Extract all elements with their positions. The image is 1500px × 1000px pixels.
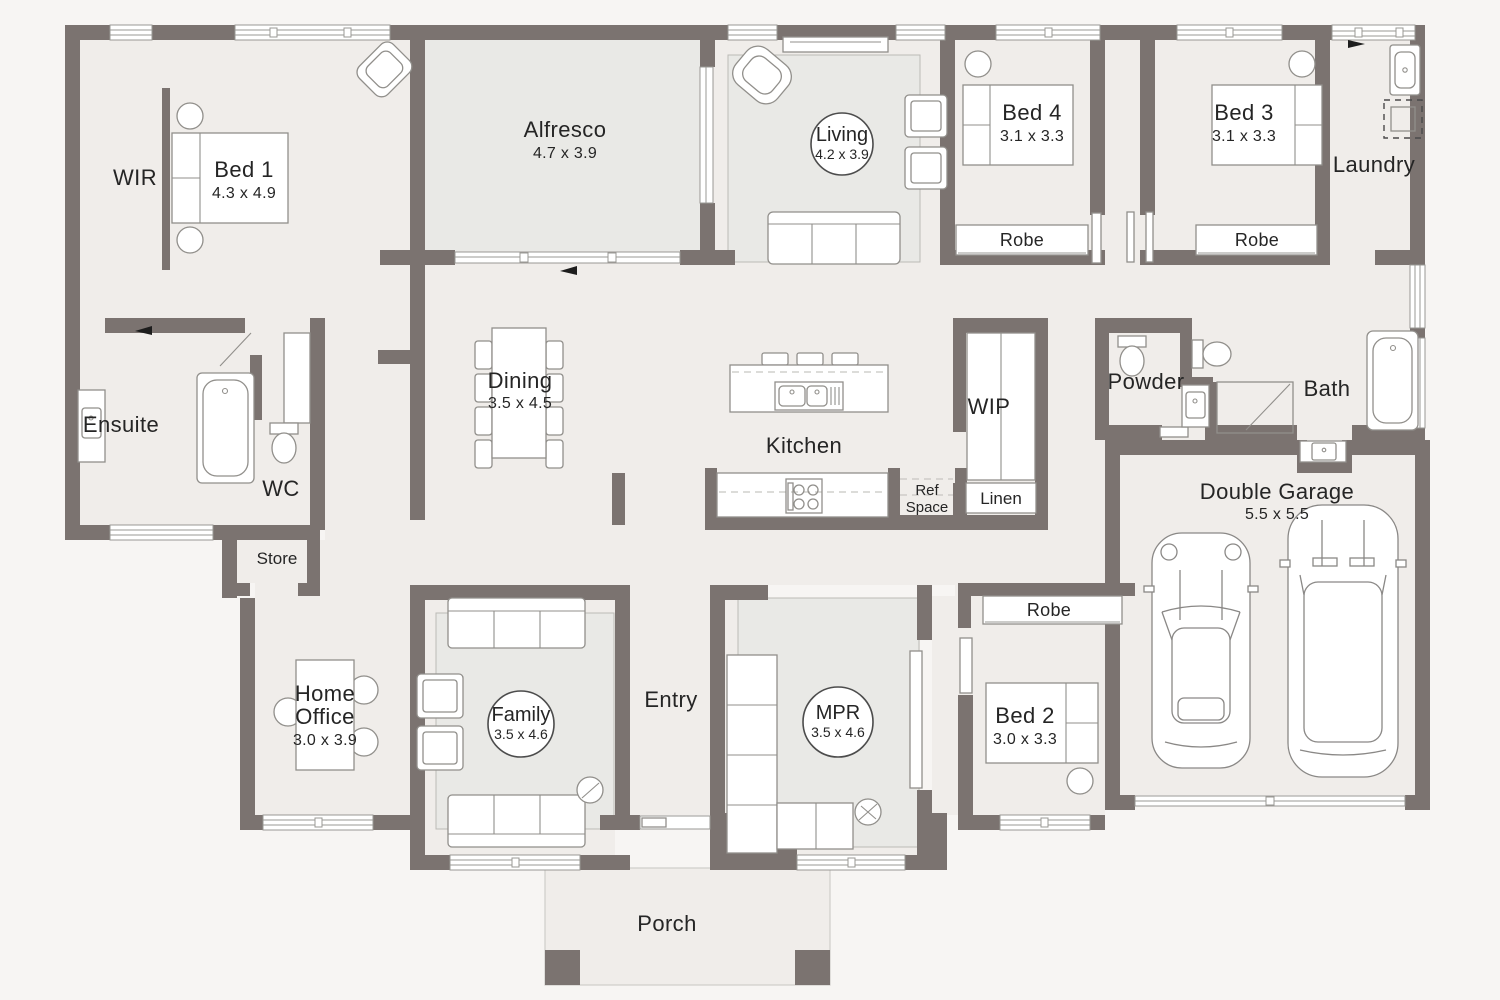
family-label: Family (492, 704, 551, 726)
window (728, 25, 777, 40)
powder-slider (1160, 427, 1188, 437)
ref-space-label-1: Ref (915, 482, 939, 499)
ensuite-shelf (284, 333, 310, 423)
wir-label: WIR (113, 165, 157, 190)
dining-table (492, 328, 546, 458)
living-chair (905, 147, 947, 189)
living-alfresco-slider (700, 67, 713, 203)
porch-label: Porch (637, 911, 696, 936)
floor-plan: WIR Bed 1 4.3 x 4.9 Alfresco 4.7 x 3.9 L… (0, 0, 1500, 1000)
bed3-robe-label: Robe (1235, 230, 1279, 250)
bed3-door-leaf2 (1146, 212, 1153, 262)
mpr-dims: 3.5 x 4.6 (811, 724, 865, 740)
bed4-side-table (965, 51, 991, 77)
bed2-door (960, 638, 972, 693)
wip-label: WIP (968, 394, 1011, 419)
tv-unit (783, 37, 888, 52)
bed1-side-table (177, 227, 203, 253)
laundry-sliding-door (1332, 25, 1415, 40)
window (797, 855, 905, 870)
window (263, 815, 373, 830)
front-door (640, 816, 710, 829)
bed3-door-leaf (1127, 212, 1134, 262)
window (450, 855, 580, 870)
wc-label: WC (262, 476, 299, 501)
bed3-side-table (1289, 51, 1315, 77)
dining-label: Dining (488, 368, 553, 393)
window (1410, 265, 1425, 328)
stool (762, 353, 788, 365)
entry-label: Entry (644, 687, 697, 712)
bath-label: Bath (1304, 376, 1351, 401)
living-label: Living (816, 124, 868, 146)
window (1177, 25, 1282, 40)
bed4-robe-label: Robe (1000, 230, 1044, 250)
bed1-label: Bed 1 (214, 157, 274, 182)
window (110, 525, 213, 540)
mpr-cavity-slider (910, 651, 922, 788)
dining-dims: 3.5 x 4.5 (488, 395, 552, 412)
garage-dims: 5.5 x 5.5 (1245, 506, 1309, 523)
ref-space-label-2: Space (906, 499, 949, 516)
linen-label: Linen (980, 489, 1022, 508)
stool (797, 353, 823, 365)
home-office-label-2: Office (295, 704, 354, 729)
wip-furniture (966, 333, 1036, 513)
family-sofa-top (448, 598, 585, 648)
bath-nook-vanity (1300, 441, 1346, 462)
kitchen-label: Kitchen (766, 433, 842, 458)
mpr-label: MPR (816, 702, 860, 724)
ensuite-bathtub (197, 373, 254, 483)
window (110, 25, 152, 40)
garage-door (1135, 796, 1405, 806)
alfresco-dims: 4.7 x 3.9 (533, 145, 597, 162)
bed4-door (1092, 213, 1101, 263)
living-chair (905, 95, 947, 137)
home-office-label-1: Home (295, 681, 355, 706)
bed2-dims: 3.0 x 3.3 (993, 731, 1057, 748)
family-dims: 3.5 x 4.6 (494, 726, 548, 742)
bed3-dims: 3.1 x 3.3 (1212, 128, 1276, 145)
porch-pillar (545, 950, 580, 985)
car-suv (1280, 505, 1406, 777)
powder-label: Powder (1108, 369, 1185, 394)
bed1-feature-wall (162, 88, 170, 270)
bed1-side-table (177, 103, 203, 129)
window (1000, 815, 1090, 830)
store-label: Store (257, 549, 298, 568)
bed3-label: Bed 3 (1214, 100, 1274, 125)
bed4-dims: 3.1 x 3.3 (1000, 128, 1064, 145)
bed2-side-table (1067, 768, 1093, 794)
window (996, 25, 1100, 40)
bath-toilet (1192, 340, 1231, 368)
floor-plan-page: WIR Bed 1 4.3 x 4.9 Alfresco 4.7 x 3.9 L… (0, 0, 1500, 1000)
laundry-label: Laundry (1333, 152, 1415, 177)
ensuite-label: Ensuite (83, 412, 159, 437)
garage-label: Double Garage (1200, 479, 1354, 504)
wc-toilet (270, 423, 298, 463)
window (235, 25, 390, 40)
alfresco-label: Alfresco (524, 117, 607, 142)
living-sofa (768, 212, 900, 264)
bed2-robe-label: Robe (1027, 600, 1071, 620)
porch-pillar (795, 950, 830, 985)
car-coupe (1144, 533, 1258, 768)
bed4-label: Bed 4 (1002, 100, 1062, 125)
family-armchair (417, 726, 463, 770)
family-sofa-bottom (448, 795, 585, 847)
bed2-label: Bed 2 (995, 703, 1055, 728)
bed1-dims: 4.3 x 4.9 (212, 185, 276, 202)
home-office-dims: 3.0 x 3.9 (293, 732, 357, 749)
family-armchair (417, 674, 463, 718)
window (896, 25, 945, 40)
alfresco-sliding-door (455, 252, 680, 263)
family-side-table (577, 777, 603, 803)
stool (832, 353, 858, 365)
living-dims: 4.2 x 3.9 (815, 146, 869, 162)
